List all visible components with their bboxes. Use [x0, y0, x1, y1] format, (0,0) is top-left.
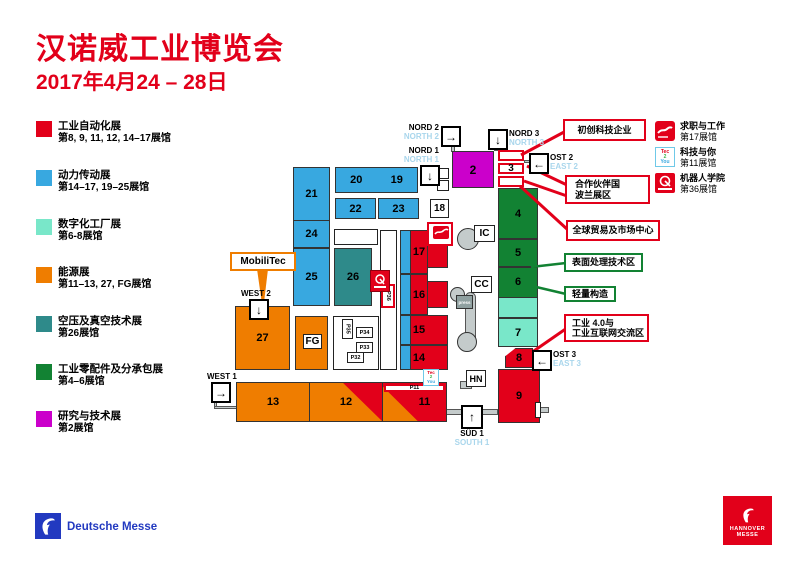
- hall-13: 13: [236, 382, 310, 422]
- cc-building: [457, 332, 477, 352]
- legend-item-industrial-supply: 工业零配件及分承包展 第4–6展馆: [36, 363, 163, 388]
- hall-24: 24: [293, 220, 330, 248]
- hall-2: 2: [452, 151, 494, 188]
- tec2you-icon: Tec 2 You: [655, 147, 675, 167]
- ic-label: IC: [474, 225, 495, 242]
- legend-name: 动力传动展: [58, 169, 149, 182]
- entrance-label-nord2: NORD 2NORTH 2: [403, 124, 439, 141]
- entrance-ost3: ←: [532, 350, 552, 371]
- legend-swatch: [36, 364, 52, 380]
- entrance-label-ost2: OST 2EAST 2: [550, 154, 578, 171]
- hall-22: 22: [335, 198, 376, 219]
- hall-14: 14: [400, 345, 448, 370]
- side-legend-tec2you: 科技与你 第11展馆: [680, 147, 716, 168]
- callout-global-business-markets: 全球贸易及市场中心: [566, 220, 660, 241]
- hannover-messe-logo: HANNOVER MESSE: [723, 496, 772, 545]
- cc-label: CC: [471, 276, 492, 293]
- callout-industry-4-0: 工业 4.0与 工业互联网交流区: [564, 314, 649, 342]
- entrance-label-nord1: NORD 1NORTH 1: [403, 147, 439, 164]
- legend-halls: 第14–17, 19–25展馆: [58, 182, 149, 195]
- hall-6-mint: [498, 297, 538, 318]
- legend-item-research-technology: 研究与技术展 第2展馆: [36, 410, 121, 435]
- event-dates: 2017年4月24 – 28日: [36, 66, 227, 96]
- legend-swatch: [36, 411, 52, 427]
- hall-5: 5: [498, 239, 538, 267]
- hall-25: 25: [293, 248, 330, 306]
- tec2you-icon: Tec 2 You: [423, 369, 439, 386]
- hall-21: 21: [293, 167, 330, 221]
- legend-halls: 第4–6展馆: [58, 376, 163, 389]
- hall-8: 8: [505, 348, 533, 368]
- legend-name: 空压及真空技术展: [58, 315, 142, 328]
- hall-16-tab: [427, 281, 448, 308]
- legend-halls: 第11–13, 27, FG展馆: [58, 279, 151, 292]
- hall-15: 15: [400, 315, 448, 345]
- hall-9-annex: [535, 402, 541, 418]
- pavilion-p35: P35: [342, 319, 353, 339]
- arrow-down-icon: ↓: [256, 304, 262, 316]
- pavilion-p32: P32: [347, 352, 364, 363]
- hall-16: 16: [400, 274, 448, 315]
- entrance-label-sued1: SÜD 1SOUTH 1: [452, 430, 492, 447]
- robotation-academy-icon: [655, 173, 675, 193]
- side-legend-job: 求职与工作 第17展馆: [680, 121, 725, 142]
- entrance-west1: →: [211, 382, 231, 403]
- legend-halls: 第2展馆: [58, 423, 121, 436]
- arrow-up-icon: ↑: [469, 411, 475, 423]
- callout-lightweight-construction: 轻量构造: [564, 286, 616, 302]
- legend-item-energy: 能源展 第11–13, 27, FG展馆: [36, 266, 151, 291]
- entrance-label-nord3: NORD 3NORTH 3: [509, 130, 544, 147]
- walkway: [214, 406, 237, 409]
- hall-18: 18: [430, 199, 449, 218]
- legend-halls: 第26展馆: [58, 328, 142, 341]
- arrow-left-icon: ←: [536, 355, 548, 367]
- callout-young-tech: 初创科技企业: [563, 119, 646, 141]
- legend-swatch: [36, 267, 52, 283]
- legend-name: 数字化工厂展: [58, 218, 121, 231]
- hall-9: 9: [498, 369, 540, 423]
- side-legend-robotation: 机器人学院 第36展馆: [680, 173, 725, 194]
- pavilion-p34: P34: [356, 327, 373, 338]
- robotation-academy-icon: [370, 270, 390, 292]
- hall-26: 26: [334, 248, 372, 306]
- arrow-down-icon: ↓: [427, 170, 433, 182]
- legend-name: 研究与技术展: [58, 410, 121, 423]
- hall-3: 3: [498, 163, 524, 174]
- legend-name: 能源展: [58, 266, 151, 279]
- legend-item-comvac: 空压及真空技术展 第26展馆: [36, 315, 142, 340]
- hall-fg-label: FG: [303, 334, 322, 349]
- job-and-career-icon: [655, 121, 675, 141]
- hall-20-19: 2019: [335, 167, 418, 193]
- callout-mobilitec: MobiliTec: [230, 252, 296, 271]
- hall-annex: [334, 229, 378, 245]
- arrow-left-icon: ←: [533, 158, 545, 170]
- arrow-right-icon: →: [215, 387, 227, 399]
- legend-swatch: [36, 219, 52, 235]
- legend-item-motion-drive: 动力传动展 第14–17, 19–25展馆: [36, 169, 149, 194]
- entrance-label-west2: WEST 2: [241, 290, 271, 299]
- hannover-messe-site-plan: 汉诺威工业博览会 2017年4月24 – 28日 工业自动化展 第8, 9, 1…: [0, 0, 795, 562]
- legend-item-digital-factory: 数字化工厂展 第6-8展馆: [36, 218, 121, 243]
- hall-6: 6: [498, 267, 538, 318]
- hn-building: HN: [466, 370, 486, 387]
- hermes-head-icon: [737, 504, 759, 526]
- entrance-sued1: ↑: [461, 405, 483, 429]
- entrance-label-west1: WEST 1: [207, 373, 237, 382]
- hall-4: 4: [498, 188, 538, 239]
- arrow-right-icon: →: [445, 131, 457, 143]
- legend-item-industrial-automation: 工业自动化展 第8, 9, 11, 12, 14–17展馆: [36, 120, 171, 145]
- entrance-nord2: →: [441, 126, 461, 147]
- callout-surface-technology: 表面处理技术区: [564, 253, 643, 272]
- callout-partner-country-poland: 合作伙伴国 波兰展区: [565, 175, 650, 204]
- hall-12: 12: [309, 382, 383, 422]
- deutsche-messe-logo: [35, 513, 61, 539]
- arrow-down-icon: ↓: [495, 134, 501, 146]
- legend-halls: 第6-8展馆: [58, 231, 121, 244]
- hall-7: 7: [498, 318, 538, 347]
- legend-halls: 第8, 9, 11, 12, 14–17展馆: [58, 133, 171, 146]
- hermes-head-icon: [35, 513, 61, 539]
- entrance-ost2: ←: [529, 153, 549, 174]
- entrance-nord1: ↓: [420, 165, 440, 186]
- hall-3-south: [498, 176, 524, 187]
- legend-name: 工业零配件及分承包展: [58, 363, 163, 376]
- hall-23: 23: [378, 198, 419, 219]
- legend-swatch: [36, 121, 52, 137]
- press-center: press: [456, 295, 473, 309]
- legend-name: 工业自动化展: [58, 120, 171, 133]
- page-title: 汉诺威工业博览会: [36, 24, 284, 68]
- walkway: [540, 407, 549, 413]
- deutsche-messe-wordmark: Deutsche Messe: [67, 521, 157, 533]
- legend-swatch: [36, 170, 52, 186]
- legend-swatch: [36, 316, 52, 332]
- job-and-career-icon: [427, 222, 453, 246]
- job-and-career-icon: [433, 226, 449, 239]
- hall-3-north: [498, 150, 524, 161]
- entrance-west2: ↓: [249, 299, 269, 320]
- entrance-nord3: ↓: [488, 129, 508, 150]
- entrance-label-ost3: OST 3EAST 3: [553, 351, 581, 368]
- hannover-messe-wordmark: HANNOVER MESSE: [730, 526, 765, 538]
